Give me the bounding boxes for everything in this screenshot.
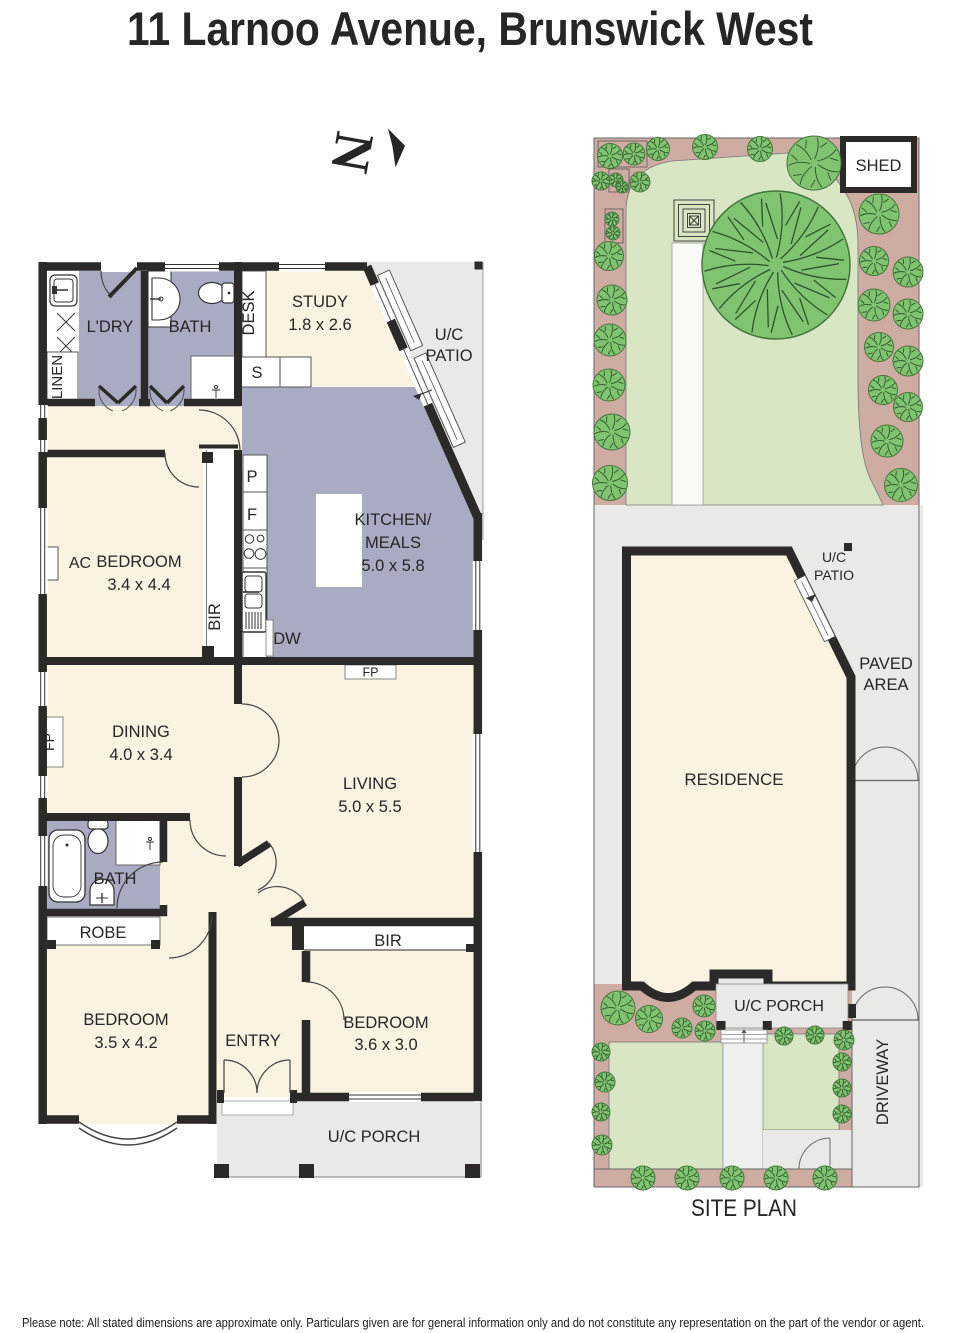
svg-text:KITCHEN/: KITCHEN/ [354,511,431,529]
svg-text:SITE PLAN: SITE PLAN [691,1195,797,1222]
svg-text:BIR: BIR [374,932,402,950]
svg-text:5.0 x 5.8: 5.0 x 5.8 [361,557,424,575]
svg-text:FP: FP [41,733,57,751]
svg-text:U/C PORCH: U/C PORCH [734,998,824,1015]
svg-text:RESIDENCE: RESIDENCE [684,770,783,789]
svg-text:STUDY: STUDY [292,293,348,311]
svg-text:F: F [247,506,257,524]
svg-text:BEDROOM: BEDROOM [343,1014,428,1032]
svg-text:3.4 x 4.4: 3.4 x 4.4 [107,576,170,594]
svg-text:DW: DW [273,630,301,648]
svg-text:DRIVEWAY: DRIVEWAY [874,1039,892,1125]
svg-text:DINING: DINING [112,723,170,741]
svg-text:AREA: AREA [864,676,909,694]
svg-text:U/C PORCH: U/C PORCH [328,1128,421,1146]
svg-text:ROBE: ROBE [80,924,127,942]
svg-text:LIVING: LIVING [343,775,397,793]
svg-text:S: S [251,364,262,382]
svg-text:DESK: DESK [240,291,258,336]
svg-text:BATH: BATH [169,318,212,336]
svg-text:BIR: BIR [206,603,224,631]
svg-text:L'DRY: L'DRY [87,318,134,336]
svg-text:11 Larnoo Avenue, Brunswick We: 11 Larnoo Avenue, Brunswick West [127,2,813,55]
svg-text:SHED: SHED [856,157,902,175]
svg-text:LINEN: LINEN [49,355,66,399]
svg-text:ENTRY: ENTRY [225,1032,281,1050]
svg-text:FP: FP [363,666,379,680]
svg-text:5.0 x 5.5: 5.0 x 5.5 [338,798,401,816]
svg-text:MEALS: MEALS [365,534,421,552]
svg-text:PAVED: PAVED [859,655,913,673]
svg-text:BEDROOM: BEDROOM [96,553,181,571]
svg-text:Please note: All stated dimens: Please note: All stated dimensions are a… [22,1315,924,1330]
svg-text:4.0 x 3.4: 4.0 x 3.4 [109,746,172,764]
svg-text:U/C: U/C [822,549,846,565]
svg-text:1.8 x 2.6: 1.8 x 2.6 [288,316,351,334]
svg-text:BEDROOM: BEDROOM [83,1011,168,1029]
svg-text:U/C: U/C [435,326,464,344]
svg-text:3.6 x 3.0: 3.6 x 3.0 [354,1036,417,1054]
svg-text:BATH: BATH [94,870,137,888]
svg-text:PATIO: PATIO [425,347,472,365]
svg-text:PATIO: PATIO [814,567,854,583]
svg-text:3.5 x 4.2: 3.5 x 4.2 [94,1034,157,1052]
svg-text:P: P [246,468,257,486]
svg-text:AC: AC [69,555,91,572]
